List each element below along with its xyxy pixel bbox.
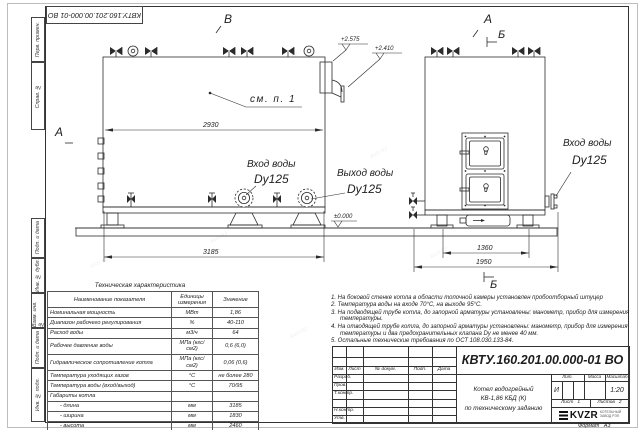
table-row: Габариты котла xyxy=(48,391,259,401)
table-row: Номинальная мощностьМВт1,86 xyxy=(48,308,259,318)
section-marker-a-right: А xyxy=(484,13,492,25)
row-prov: Пров. xyxy=(334,382,363,390)
table-row: - ширинамм1830 xyxy=(48,411,259,421)
table-row: Рабочее давление водыМПа (кгс/см2)0,6 (6… xyxy=(48,338,259,354)
note-5: 5. Остальные технические требования по О… xyxy=(331,338,633,345)
col-ndoc: № докум. xyxy=(363,366,408,374)
col-list: Лист xyxy=(346,366,363,374)
note-2: 2. Температура воды на входе 70°С, на вы… xyxy=(331,302,633,309)
table-row: Гидравлическое сопротивление котлаМПа (к… xyxy=(48,354,259,370)
col-data: Дата xyxy=(432,366,456,374)
section-marker-b-top: Б xyxy=(498,30,505,41)
elevation-2410: +2.410 xyxy=(375,46,394,52)
product-name-line: КВ-1,86 КБД (К) xyxy=(481,394,527,403)
row-nkontr: Н.контр. xyxy=(334,407,363,415)
water-inlet-label-side: Вход воды xyxy=(247,160,296,170)
tech-table-title: Техническая характеристика xyxy=(47,283,233,289)
tech-table-header: Наименование показателя Единицы измерени… xyxy=(48,292,259,308)
company-logo: KVZR КОТЕЛЬНЫЙ ЗАВОД РЭП xyxy=(552,408,628,422)
sheet-label: Лист xyxy=(561,401,573,406)
see-note-label: см. п. 1 xyxy=(250,95,296,105)
tech-table: Наименование показателя Единицы измерени… xyxy=(47,291,259,430)
water-outlet-label: Выход воды xyxy=(337,169,393,179)
kvzr-logo-text: KVZR xyxy=(570,410,598,421)
drawing-sheet: kvzr.kz kvzr.kz kvzr.kz kvzr.kz kvzr.kz … xyxy=(0,0,644,430)
sheet-cell: Лист 1 xyxy=(551,399,590,407)
title-block: КВТУ.160.201.00.000-01 ВО Котел водогрей… xyxy=(332,346,630,424)
kvzr-logo-icon xyxy=(559,410,568,420)
dim-1360: 1360 xyxy=(477,245,493,252)
product-name-line: по техническому заданию xyxy=(465,404,543,413)
row-tkontr: Т.контр. xyxy=(334,390,363,399)
format-word: Формат xyxy=(578,423,599,429)
boiler-front-view xyxy=(409,47,557,228)
note-1: 1. На боковой стенке котла в области топ… xyxy=(331,295,633,302)
sheets-label: Листов xyxy=(597,401,614,406)
table-row: - высотамм2460 xyxy=(48,421,259,430)
note-3: 3. На подводящей трубе котла, до запорно… xyxy=(331,310,633,324)
table-row: - длинамм3185 xyxy=(48,401,259,411)
section-marker-a-left: А xyxy=(55,126,63,138)
company-name-line: ЗАВОД РЭП xyxy=(600,415,621,419)
dim-1950: 1950 xyxy=(476,259,492,266)
boiler-side-view xyxy=(98,46,344,228)
product-name: Котел водогрейный КВ-1,86 КБД (К) по тех… xyxy=(457,376,550,422)
water-inlet-dn-side: Dy125 xyxy=(254,173,289,185)
scale-header: Масштаб xyxy=(605,374,629,381)
format-label: Формат А3 xyxy=(578,423,611,429)
water-inlet-dn-front: Dy125 xyxy=(572,154,607,166)
note-4: 4. На отводящей трубе котла, до запорной… xyxy=(331,324,633,338)
company-name: КОТЕЛЬНЫЙ ЗАВОД РЭП xyxy=(600,411,621,419)
section-marker-v: В xyxy=(224,13,232,25)
elevation-zero: ±0.000 xyxy=(334,214,352,220)
water-outlet-dn: Dy125 xyxy=(347,183,382,195)
row-utv: Утв. xyxy=(334,415,363,423)
format-value: А3 xyxy=(604,423,611,429)
table-row: Температура уходящих газов°Сне более 280 xyxy=(48,371,259,381)
lit-header: Лит. xyxy=(551,374,584,381)
col-header: Наименование показателя xyxy=(48,292,172,308)
dim-3185: 3185 xyxy=(203,249,219,256)
sheets-cell: Листов 2 xyxy=(590,399,629,407)
sheets-value: 2 xyxy=(619,401,622,406)
lit-value: И xyxy=(551,381,562,399)
ground-hatch xyxy=(75,228,558,236)
col-header: Единицы измерения xyxy=(172,292,213,308)
doc-designation: КВТУ.160.201.00.000-01 ВО xyxy=(457,348,628,373)
dim-2930: 2930 xyxy=(203,122,219,129)
col-header: Значение xyxy=(213,292,259,308)
table-row: Температура воды (вход/выход)°С70/95 xyxy=(48,381,259,391)
table-row: Расход водым3/ч64 xyxy=(48,328,259,338)
technical-notes: 1. На боковой стенке котла в области топ… xyxy=(331,295,633,345)
water-inlet-label-front: Вход воды xyxy=(563,139,612,149)
col-izm: Изм. xyxy=(333,366,346,374)
table-row: Диапазон рабочего регулирования%40-110 xyxy=(48,318,259,328)
sheet-value: 1 xyxy=(577,401,580,406)
product-name-line: Котел водогрейный xyxy=(474,385,534,394)
row-razrab: Разраб. xyxy=(334,374,363,382)
col-podp: Подп. xyxy=(408,366,432,374)
scale-value: 1:20 xyxy=(605,381,629,399)
elevation-2575: +2.575 xyxy=(341,37,360,43)
mass-header: Масса xyxy=(584,374,605,381)
section-marker-b-bottom: Б xyxy=(490,280,497,291)
